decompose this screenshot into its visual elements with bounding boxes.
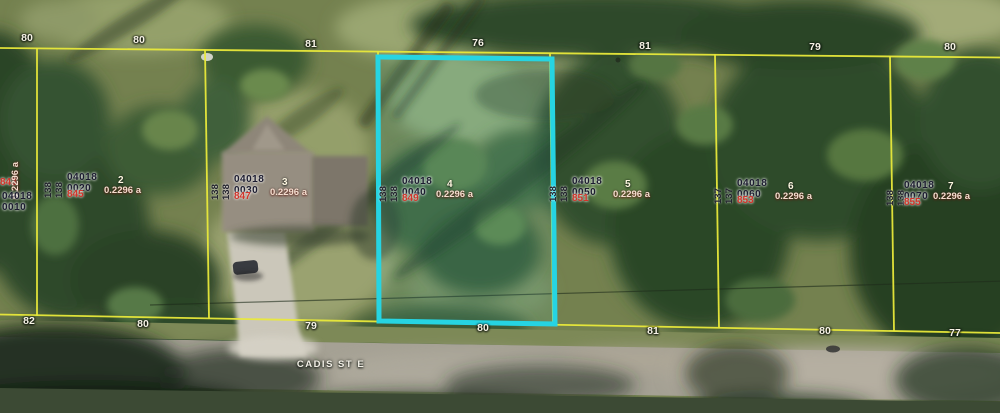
top-dimension-label: 81 xyxy=(639,41,651,52)
parcel-block: 04018 xyxy=(737,179,767,189)
parcel-area: 0.2296 a xyxy=(775,192,812,202)
bottom-dimension-label: 80 xyxy=(819,326,831,337)
parcel-side-dimension: 138 xyxy=(211,184,221,200)
parcel-block: 04018 xyxy=(572,177,602,187)
parcel-lot-code: 0010 xyxy=(2,203,26,213)
parcel-label-cluster-2: 138 138 04018 0020 845 2 0.2296 a xyxy=(44,170,154,210)
parcel-side-dimension: 138 xyxy=(222,184,232,200)
parcel-side-dimension: 138 xyxy=(560,186,570,202)
top-dimension-label: 80 xyxy=(133,35,145,46)
parcel-side-dimension: 138 xyxy=(886,190,896,206)
aerial-map-viewport[interactable]: 80 80 81 76 81 79 80 82 80 79 80 81 80 7… xyxy=(0,0,1000,413)
street-name-label: CADIS ST E xyxy=(297,360,365,370)
parcel-label-cluster-7: 138 138 04018 0070 855 7 0.2296 a xyxy=(886,178,996,218)
top-dimension-label: 80 xyxy=(21,33,33,44)
parcel-area: 0.2296 a xyxy=(436,190,473,200)
bottom-dimension-label: 82 xyxy=(23,316,35,327)
parcel-area: 0.2296 a xyxy=(104,186,141,196)
map-labels: 80 80 81 76 81 79 80 82 80 79 80 81 80 7… xyxy=(0,0,1000,413)
parcel-side-dimension: 138 xyxy=(379,186,389,202)
parcel-address: 845 xyxy=(67,190,84,200)
bottom-dimension-label: 81 xyxy=(647,326,659,337)
bottom-dimension-label: 80 xyxy=(137,319,149,330)
parcel-side-dimension: 137 xyxy=(725,188,735,204)
parcel-block: 04018 xyxy=(234,175,264,185)
top-dimension-label: 81 xyxy=(305,39,317,50)
parcel-address: 851 xyxy=(572,194,589,204)
parcel-area: 0.2296 a xyxy=(270,188,307,198)
parcel-label-cluster-5: 138 138 04018 0050 851 5 0.2296 a xyxy=(549,174,659,214)
parcel-label-cluster-6: 137 137 04018 0060 853 6 0.2296 a xyxy=(714,176,824,216)
parcel-address: 847 xyxy=(234,192,251,202)
parcel-block: 04018 xyxy=(67,173,97,183)
top-dimension-label: 76 xyxy=(472,38,484,49)
parcel-block: 04018 xyxy=(402,177,432,187)
bottom-dimension-label: 79 xyxy=(305,321,317,332)
parcel-side-dimension: 138 xyxy=(390,186,400,202)
parcel-address: 855 xyxy=(904,198,921,208)
top-dimension-label: 80 xyxy=(944,42,956,53)
parcel-area: 0.2296 a xyxy=(933,192,970,202)
parcel-block: 04018 xyxy=(2,192,32,202)
parcel-address: 849 xyxy=(402,194,419,204)
parcel-side-dimension: 137 xyxy=(714,188,724,204)
parcel-address: 853 xyxy=(737,196,754,206)
parcel-label-cluster-3: 138 138 04018 0030 847 3 0.2296 a xyxy=(211,172,321,212)
bottom-dimension-label: 80 xyxy=(477,323,489,334)
parcel-side-dimension: 138 xyxy=(44,182,54,198)
parcel-label-cluster-4: 138 138 04018 0040 849 4 0.2296 a xyxy=(379,174,489,214)
parcel-area: 0.2296 a xyxy=(613,190,650,200)
parcel-side-dimension: 138 xyxy=(549,186,559,202)
parcel-side-dimension: 138 xyxy=(55,182,65,198)
top-dimension-label: 79 xyxy=(809,42,821,53)
bottom-dimension-label: 77 xyxy=(949,328,961,339)
parcel-block: 04018 xyxy=(904,181,934,191)
